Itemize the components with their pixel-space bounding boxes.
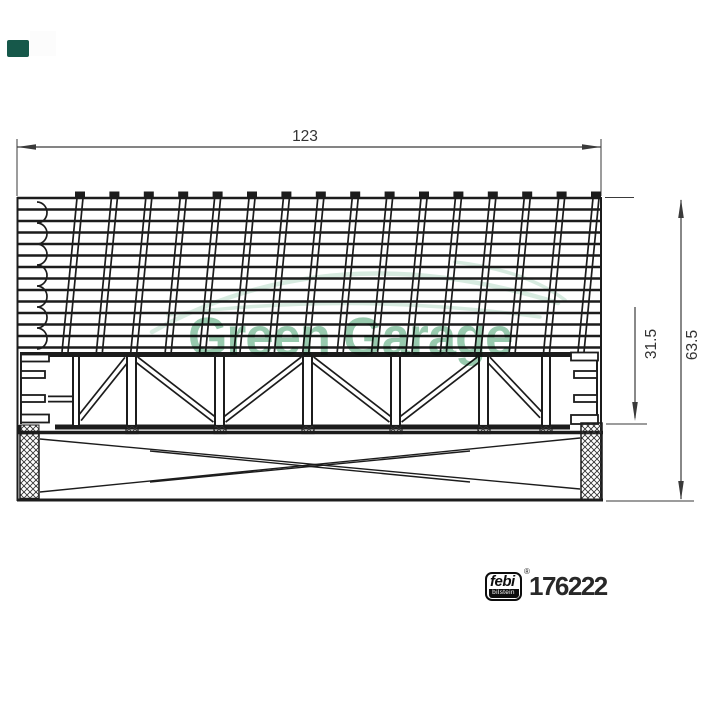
frame-diagonals bbox=[48, 359, 542, 420]
total-height-label: 63.5 bbox=[684, 330, 701, 360]
arrow-right-icon bbox=[582, 144, 601, 150]
width-dimension-label: 123 bbox=[292, 128, 318, 145]
febi-wordmark: febi bbox=[490, 575, 520, 588]
base-cross-lines bbox=[40, 438, 580, 492]
febi-logo: febi bilstein bbox=[485, 572, 522, 601]
watermark-text: Green Garage bbox=[188, 306, 536, 368]
dimension-element-height: 31.5 bbox=[606, 307, 660, 424]
arrow-up-icon bbox=[678, 199, 684, 218]
dimension-width: 123 bbox=[17, 128, 601, 196]
right-end-cap bbox=[581, 423, 602, 500]
left-comb bbox=[21, 353, 49, 424]
left-end-cap bbox=[20, 434, 39, 499]
drawing-canvas: 123 bbox=[0, 0, 720, 720]
green-garage-logo-block bbox=[7, 40, 29, 57]
arrow-down-icon bbox=[678, 481, 684, 500]
element-height-label: 31.5 bbox=[643, 329, 660, 359]
pleat-fold-scallops bbox=[37, 202, 47, 349]
faint-watermark-square bbox=[30, 31, 56, 56]
right-comb bbox=[571, 353, 598, 425]
arrow-down-icon bbox=[632, 402, 638, 421]
part-number: 176222 bbox=[529, 571, 607, 602]
base-section bbox=[17, 423, 603, 500]
arrow-left-icon bbox=[17, 144, 36, 150]
page: { "watermark": { "brand_text": "Green Ga… bbox=[0, 0, 720, 720]
bilstein-bar: bilstein bbox=[489, 589, 519, 598]
